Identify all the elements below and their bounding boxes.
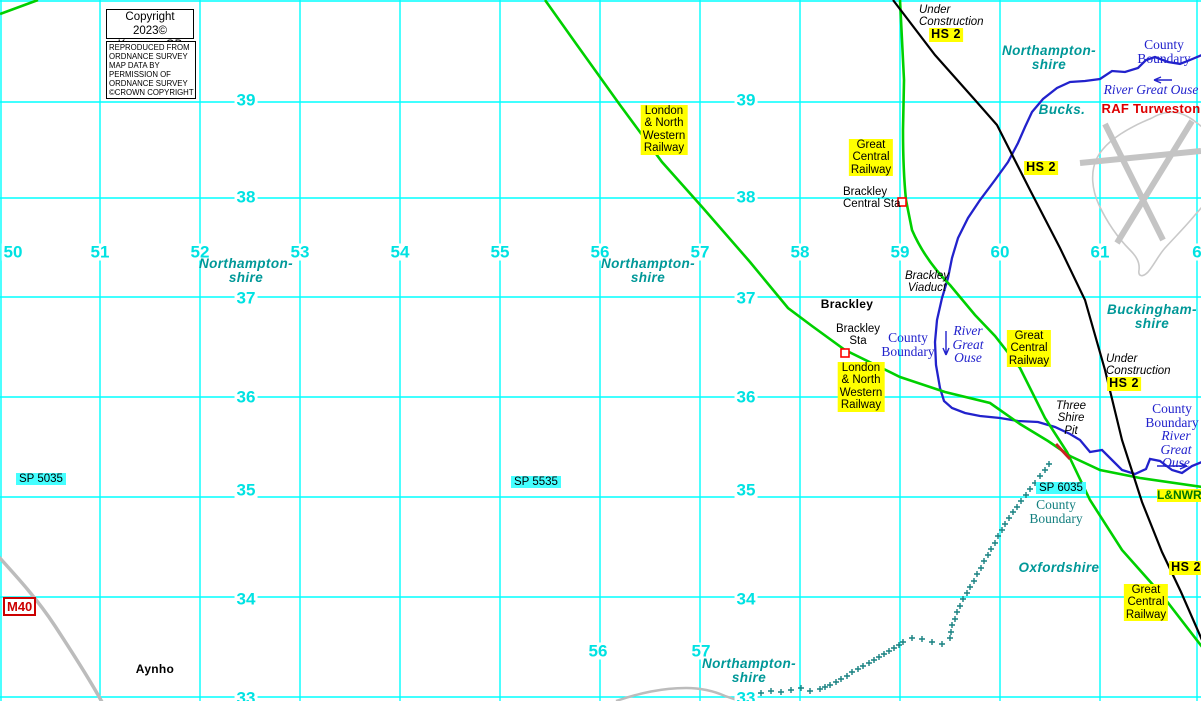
sp-6035-label: SP 6035: [1036, 482, 1086, 494]
under-construction-label-right: Under Construction: [1106, 353, 1171, 378]
county-boundary-label-topright: County Boundary: [1137, 38, 1190, 65]
lnwr-label-top: London & North Western Railway: [641, 105, 688, 155]
gcr-label-top: Great Central Railway: [849, 139, 893, 176]
copyright-line1: Copyright 2023©: [125, 11, 174, 37]
three-shire-pit-label: Three Shire Pit: [1056, 400, 1086, 437]
copyright-box: Copyright 2023©KeymapsGB: [106, 9, 194, 39]
northamptonshire-label-left: Northampton- shire: [199, 257, 293, 285]
gcr-label-bottom: Great Central Railway: [1124, 584, 1168, 621]
under-construction-label-top: Under Construction: [919, 4, 984, 29]
brackley-viaduct-label: Brackley Viaduct: [905, 270, 949, 295]
sp-5535-label: SP 5535: [511, 476, 561, 488]
aynho-label: Aynho: [136, 663, 174, 676]
northamptonshire-label-mid: Northampton- shire: [601, 257, 695, 285]
brackley-sta-label: Brackley Sta: [836, 323, 880, 348]
oxfordshire-label: Oxfordshire: [1019, 561, 1100, 575]
bucks-label: Bucks.: [1039, 103, 1086, 117]
river-great-ouse-label-mid: River Great Ouse: [953, 324, 984, 365]
northamptonshire-label-bottom: Northampton- shire: [702, 657, 796, 685]
hs2-label-4: HS 2: [1169, 561, 1201, 575]
lnwr-label-mid: London & North Western Railway: [838, 362, 885, 412]
river-great-ouse-label-right: River Great Ouse: [1161, 429, 1192, 470]
map-labels: Under ConstructionHS 2Northampton- shire…: [0, 0, 1201, 701]
river-great-ouse-label-topright: River Great Ouse: [1104, 83, 1199, 97]
hs2-label-2: HS 2: [1024, 161, 1058, 175]
gcr-label-mid: Great Central Railway: [1007, 330, 1051, 367]
northamptonshire-label-topright: Northampton- shire: [1002, 44, 1096, 72]
brackley-label: Brackley: [821, 298, 873, 311]
sp-5035-label: SP 5035: [16, 473, 66, 485]
county-boundary-label-oxford: County Boundary: [1029, 498, 1082, 525]
county-boundary-label-mid: County Boundary: [881, 331, 934, 358]
brackley-central-sta-label: Brackley Central Sta: [843, 186, 901, 211]
hs2-label-top: HS 2: [929, 28, 963, 42]
os-attribution-box: REPRODUCED FROM ORDNANCE SURVEY MAP DATA…: [106, 41, 196, 99]
county-boundary-label-right: County Boundary: [1145, 402, 1198, 429]
map-canvas[interactable]: 5051525354555657585960616565739393838373…: [0, 0, 1201, 701]
m40-road-badge: M40: [3, 597, 36, 616]
buckinghamshire-label: Buckingham- shire: [1107, 303, 1197, 331]
hs2-label-3: HS 2: [1107, 377, 1141, 391]
lnwr-label-right: L&NWR: [1157, 489, 1201, 502]
raf-turweston-label: RAF Turweston: [1102, 102, 1201, 116]
